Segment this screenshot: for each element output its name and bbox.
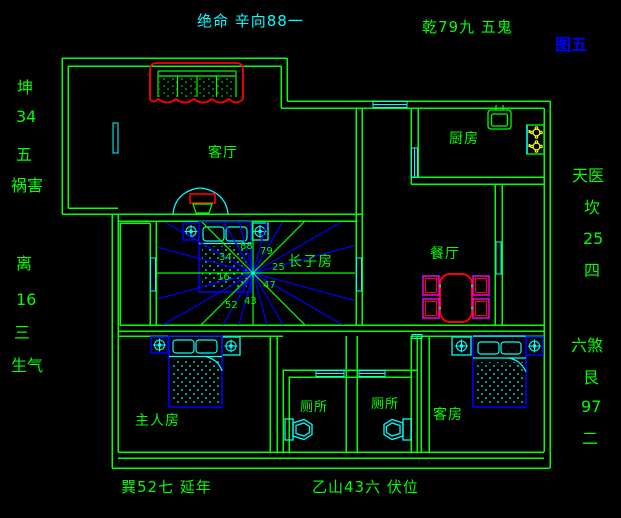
compass-number: 25 [272,263,285,273]
annotation-left: 三 [14,325,30,341]
compass-number: 79 [260,247,273,257]
dining-set [423,274,489,322]
annotation-right: 六煞 [571,338,603,354]
bed-master [151,336,240,407]
annotation-left: 坤 [17,80,33,96]
room-label-toilet-right: 厕所 [371,398,399,411]
annotation-right: 二 [582,431,598,447]
figure-title: 图五 [555,37,587,53]
sofa [150,63,243,103]
room-label-master: 主人房 [135,414,180,428]
compass-number: 34 [219,253,232,263]
lamp-icon [153,339,238,353]
annotation-left: 生气 [11,358,43,374]
lamp-icon [455,340,541,353]
annotation-right: 艮 [583,370,599,386]
room-label-dining: 餐厅 [430,247,460,261]
annotation-top-right: 乾79九 五鬼 [422,20,513,35]
window-son-room-west [151,258,156,291]
pillow [196,340,217,353]
compass-number: 52 [225,301,238,311]
compass-number: 88 [240,242,253,252]
room-label-guest: 客房 [433,408,463,422]
room-label-son: 长子房 [288,255,333,269]
compass-radial-lines [23,43,483,503]
annotation-right: 25 [583,231,603,247]
window-living-west [113,123,118,153]
annotation-left: 祸害 [11,178,43,194]
pillow [478,342,499,354]
compass-number: 47 [263,281,276,291]
compass-number: 16 [217,273,230,283]
compass-number: 43 [244,297,257,307]
tv-cabinet [173,188,228,214]
annotation-right: 天医 [572,168,604,184]
annotation-bottom-center: 乙山43六 伏位 [312,480,419,495]
annotation-left: 16 [16,292,36,308]
pillow [501,342,521,354]
annotation-left: 34 [16,109,36,125]
floor-plan-canvas: 绝命 辛向88一 乾79九 五鬼 图五 坤 34 五 祸害 离 16 三 生气 … [0,0,621,518]
dining-table [440,274,472,322]
annotation-right: 四 [584,263,600,279]
pillow [173,340,194,353]
annotation-left: 离 [16,256,32,272]
stove-icon [527,125,544,154]
window-son-room-east [357,258,362,291]
bed-guest [452,336,543,407]
room-label-toilet-left: 厕所 [300,401,328,414]
annotation-top-left: 绝命 辛向88一 [197,14,304,29]
window-dining-east [496,242,501,274]
toilet-icon [384,419,411,440]
annotation-right: 坎 [584,200,600,216]
room-label-kitchen: 厨房 [449,132,479,146]
tv-icon [190,194,215,203]
room-label-living: 客厅 [208,146,238,160]
annotation-right: 97 [581,399,601,415]
annotation-left: 五 [16,147,32,163]
annotation-bottom-left: 巽52七 延年 [121,480,212,495]
